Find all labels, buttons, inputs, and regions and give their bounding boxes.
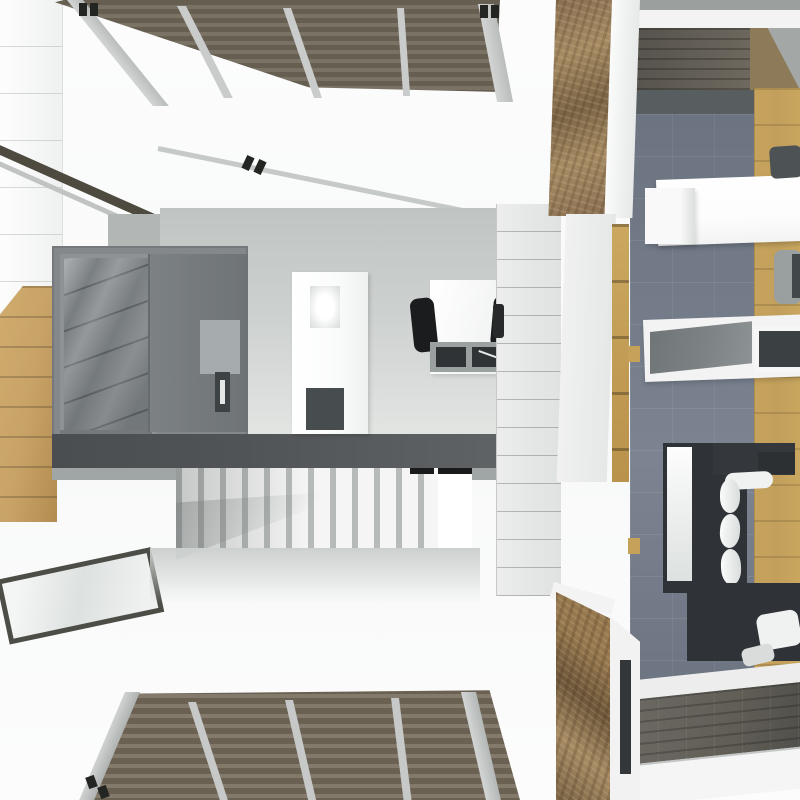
glass-skylight (0, 547, 164, 644)
built-in-oven (200, 320, 240, 374)
window-glazing-slot (620, 660, 631, 774)
island-sink (310, 286, 340, 328)
floorplan-render (0, 0, 800, 800)
door-leaf (750, 28, 800, 90)
floor-below-stairs (150, 548, 480, 604)
deck-bottom (85, 688, 520, 800)
oven-handle-slot (220, 380, 225, 404)
wood-floor-left (0, 286, 57, 522)
pergola-top (55, 0, 500, 112)
sofa-pillow (720, 479, 740, 513)
open-door-wedge (750, 28, 800, 90)
beam-end-cap (79, 3, 87, 16)
shelf-compartment (436, 347, 466, 367)
wall-shelf (645, 188, 695, 244)
sofa-light-stripe (667, 447, 692, 581)
door-handle (493, 304, 504, 338)
oven-handle (215, 372, 230, 412)
stone-wall-bottom (556, 592, 612, 800)
stair-last-tread (438, 468, 472, 554)
beam-end-cap (90, 3, 98, 16)
console-inset (754, 326, 800, 372)
stair-tread-cap (410, 468, 434, 474)
island-cooktop (306, 388, 344, 430)
lower-roof-edge (158, 146, 484, 217)
beam-end-cap (491, 5, 499, 18)
ladder-rung (628, 538, 640, 554)
paneled-partition-wall (496, 204, 561, 596)
dining-chair (769, 145, 800, 179)
ladder-shelf (612, 224, 629, 482)
dining-chair-back (792, 254, 800, 298)
wall-white-lower (557, 214, 616, 482)
kitchen-counter (52, 434, 522, 468)
ladder-rung (628, 346, 640, 362)
beam-end-cap (480, 5, 488, 18)
